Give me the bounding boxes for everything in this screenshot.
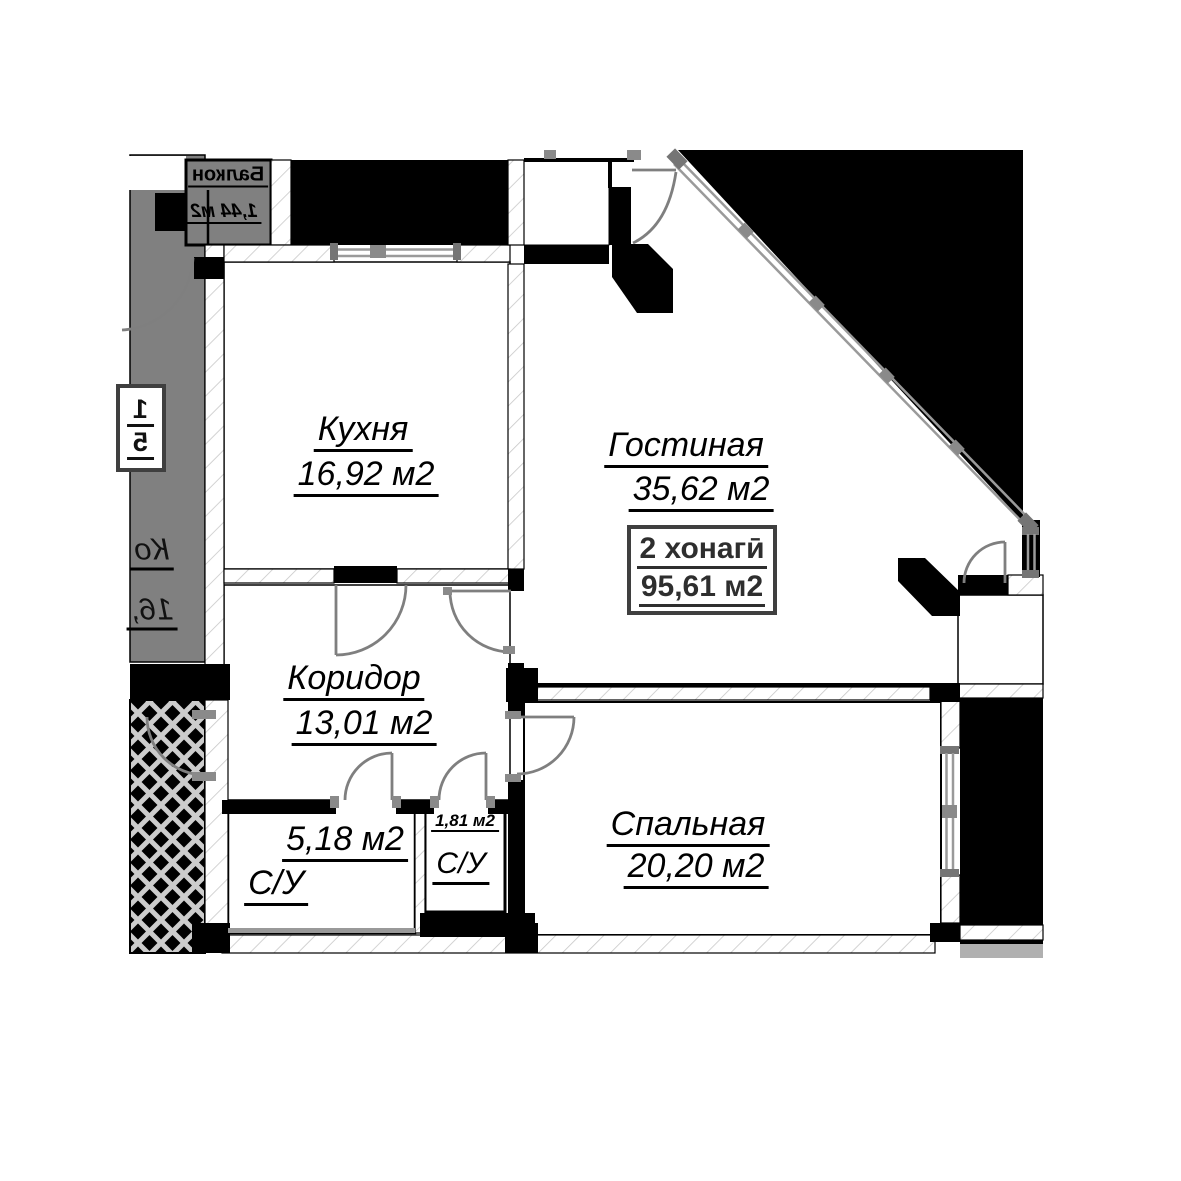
kitchen-area: 16,92 м2 (294, 457, 439, 497)
floor-plan-drawing (0, 0, 1181, 1181)
unit-total-box: 2 хонагӣ 95,61 м2 (627, 525, 777, 615)
bath-small-label: С/У (432, 849, 489, 885)
neighbor-unit-box-line2: 5 (127, 429, 154, 460)
neighbor-room-area-partial: 16, (126, 594, 177, 631)
unit-type-label: 2 хонагӣ (637, 534, 766, 569)
neighbor-unit-box: 1 5 (116, 384, 166, 472)
neighbor-balcony-label: Балкон (188, 165, 268, 188)
corridor-label: Коридор (283, 661, 424, 701)
bedroom-area: 20,20 м2 (624, 849, 769, 889)
entry-door (632, 170, 676, 243)
kitchen-window (330, 243, 461, 260)
kitchen-label: Кухня (314, 412, 413, 452)
neighbor-room-label-partial: Ко (130, 534, 174, 571)
bath-threshold (228, 928, 415, 933)
living-label: Гостиная (604, 428, 768, 468)
floor-plan: Кухня 16,92 м2 Гостиная 35,62 м2 2 хонаг… (0, 0, 1181, 1181)
bedroom-label: Спальная (607, 807, 770, 847)
bedroom-window (940, 746, 959, 877)
bath-large-label: С/У (244, 866, 308, 906)
corridor-area: 13,01 м2 (292, 706, 437, 746)
neighbor-balcony-area: 1,44 м2 (187, 202, 262, 224)
stairwell-shaft (130, 700, 205, 953)
bath-small-area: 1,81 м2 (431, 812, 499, 832)
unit-total-area: 95,61 м2 (639, 572, 765, 607)
neighbor-unit-box-line1: 1 (127, 396, 154, 427)
living-area: 35,62 м2 (629, 472, 774, 512)
bath-large-area: 5,18 м2 (282, 822, 408, 862)
